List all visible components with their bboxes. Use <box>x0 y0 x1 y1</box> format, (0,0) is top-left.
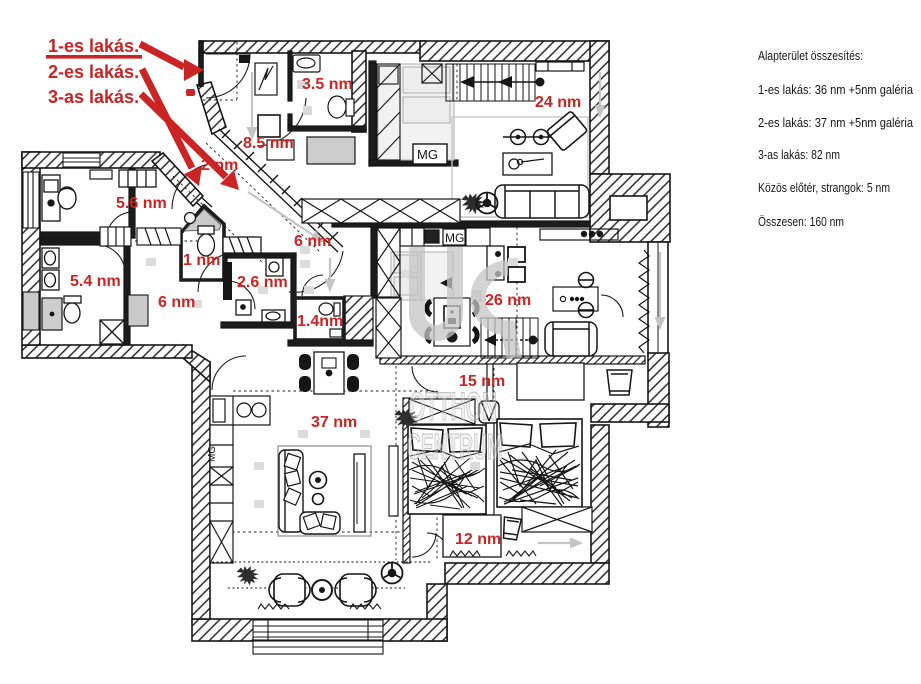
svg-text:1-es lakás.: 1-es lakás. <box>48 36 139 56</box>
svg-text:Alapterület összesítés:: Alapterület összesítés: <box>758 49 863 63</box>
svg-text:CENTRUM: CENTRUM <box>407 426 503 467</box>
svg-text:6 nm: 6 nm <box>158 294 195 311</box>
svg-text:26 nm: 26 nm <box>485 292 531 309</box>
svg-text:Összesen: 160 nm: Összesen: 160 nm <box>758 215 844 229</box>
svg-text:37 nm: 37 nm <box>311 414 357 431</box>
svg-text:5.4 nm: 5.4 nm <box>70 273 121 290</box>
svg-text:1-es lakás: 36 nm +5nm galér: 1-es lakás: 36 nm +5nm galéria <box>758 83 913 97</box>
svg-text:3-as lakás.: 3-as lakás. <box>48 87 139 107</box>
svg-text:OTTHON: OTTHON <box>409 385 497 429</box>
svg-text:24 nm: 24 nm <box>535 94 581 111</box>
svg-text:2 nm: 2 nm <box>201 157 238 174</box>
svg-text:1 nm: 1 nm <box>183 252 220 269</box>
svg-text:6 nm: 6 nm <box>294 233 331 250</box>
svg-text:MG: MG <box>207 446 218 462</box>
svg-text:8.5 nm: 8.5 nm <box>243 135 294 152</box>
svg-text:3-as lakás: 82 nm: 3-as lakás: 82 nm <box>758 148 840 162</box>
svg-text:MG: MG <box>417 147 438 162</box>
svg-text:Közös előtér, strangok: 5 nm: Közös előtér, strangok: 5 nm <box>758 181 890 195</box>
svg-text:2.6 nm: 2.6 nm <box>237 274 288 291</box>
svg-text:2-es lakás: 37 nm +5nm galér: 2-es lakás: 37 nm +5nm galéria <box>758 116 913 130</box>
svg-text:5.6 nm: 5.6 nm <box>116 195 167 212</box>
svg-text:1.4nm: 1.4nm <box>297 313 343 330</box>
svg-text:3.5 nm: 3.5 nm <box>302 76 353 93</box>
svg-text:2-es lakás.: 2-es lakás. <box>48 62 139 82</box>
svg-text:MG: MG <box>445 231 464 245</box>
svg-text:15 nm: 15 nm <box>459 373 505 390</box>
svg-text:12 nm: 12 nm <box>455 531 501 548</box>
